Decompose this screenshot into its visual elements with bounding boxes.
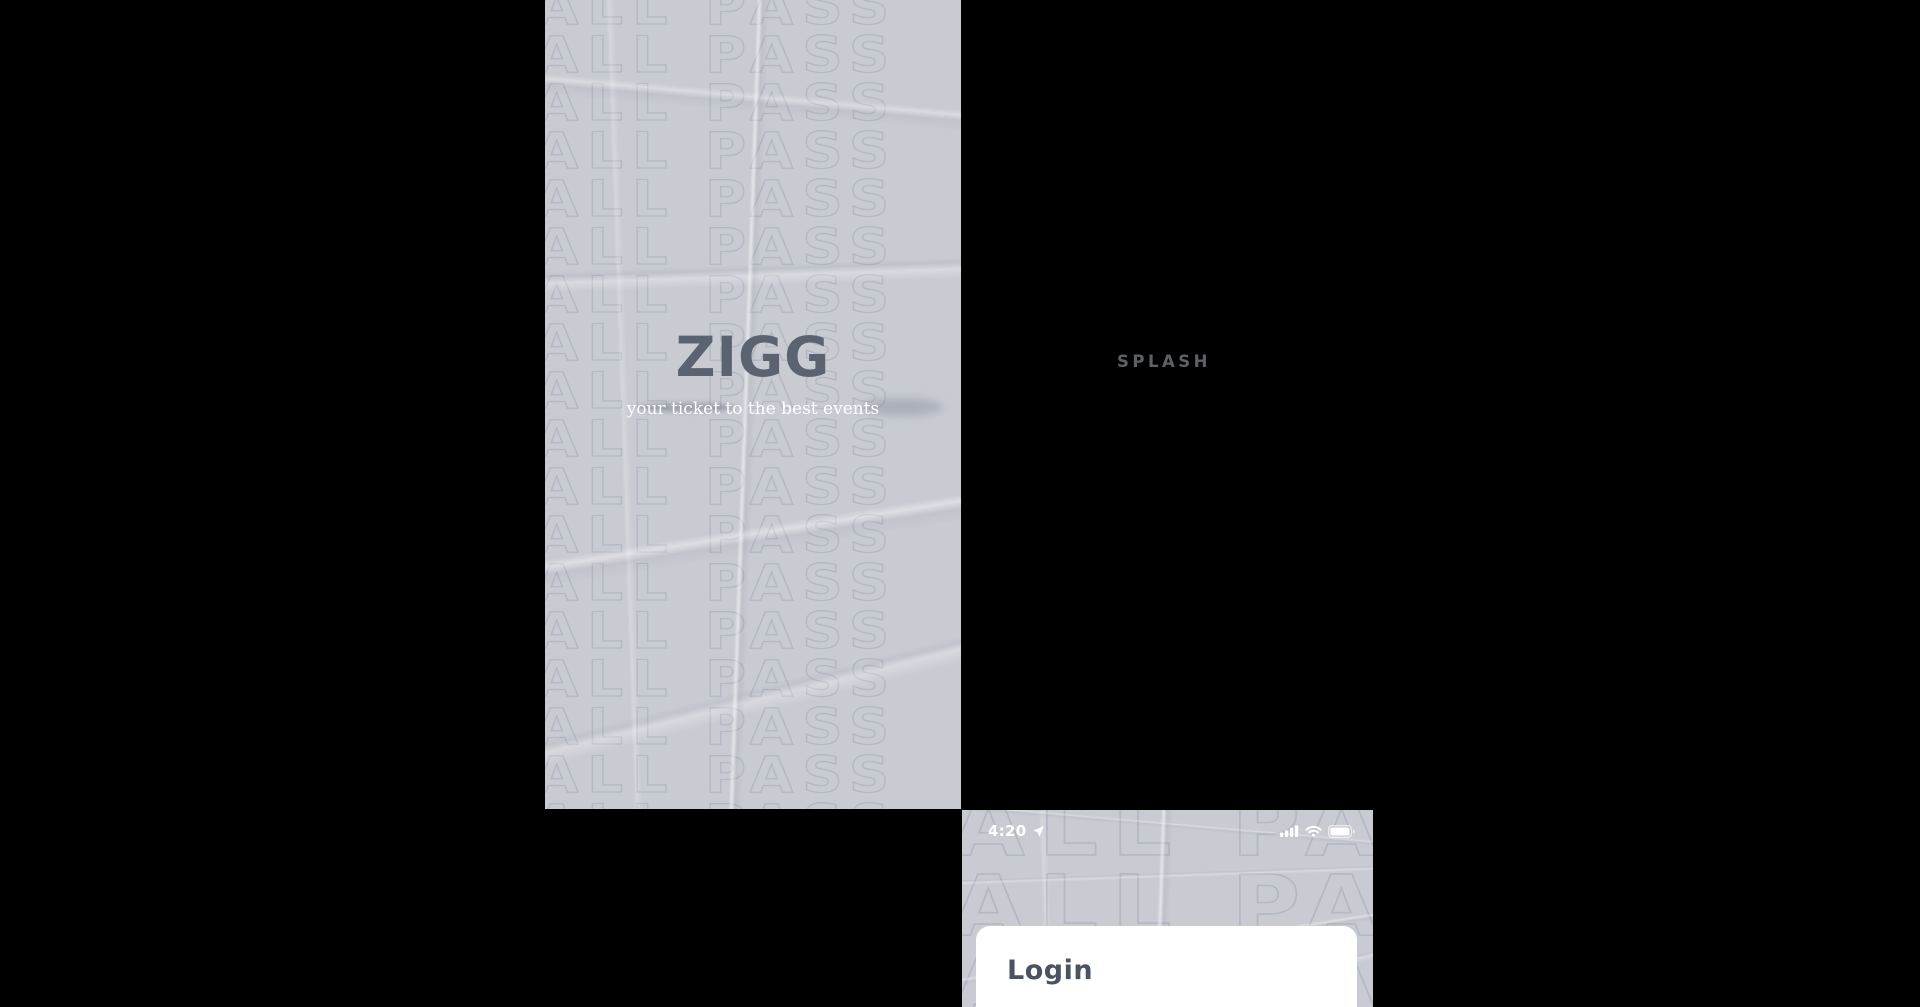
zigg-logo: ZIGG bbox=[545, 325, 961, 389]
login-title: Login bbox=[1007, 955, 1093, 986]
login-screen-artboard[interactable]: ALL PASSALL PASSALL PASSALL PASS 4:20 bbox=[962, 810, 1373, 1007]
status-time: 4:20 bbox=[988, 822, 1027, 840]
splash-screen-artboard[interactable]: ALL PASSALL PASSALL PASSALL PASSALL PASS… bbox=[545, 0, 961, 809]
status-bar: 4:20 bbox=[962, 820, 1373, 842]
splash-tagline: your ticket to the best events bbox=[545, 399, 961, 419]
location-arrow-icon bbox=[1032, 825, 1045, 838]
design-canvas: ALL PASSALL PASSALL PASSALL PASSALL PASS… bbox=[0, 0, 1920, 1007]
battery-icon bbox=[1328, 825, 1355, 838]
canvas-label-splash[interactable]: SPLASH bbox=[1117, 352, 1211, 371]
login-card: Login bbox=[976, 926, 1357, 1007]
cellular-signal-icon bbox=[1280, 825, 1299, 837]
wifi-icon bbox=[1305, 825, 1322, 837]
